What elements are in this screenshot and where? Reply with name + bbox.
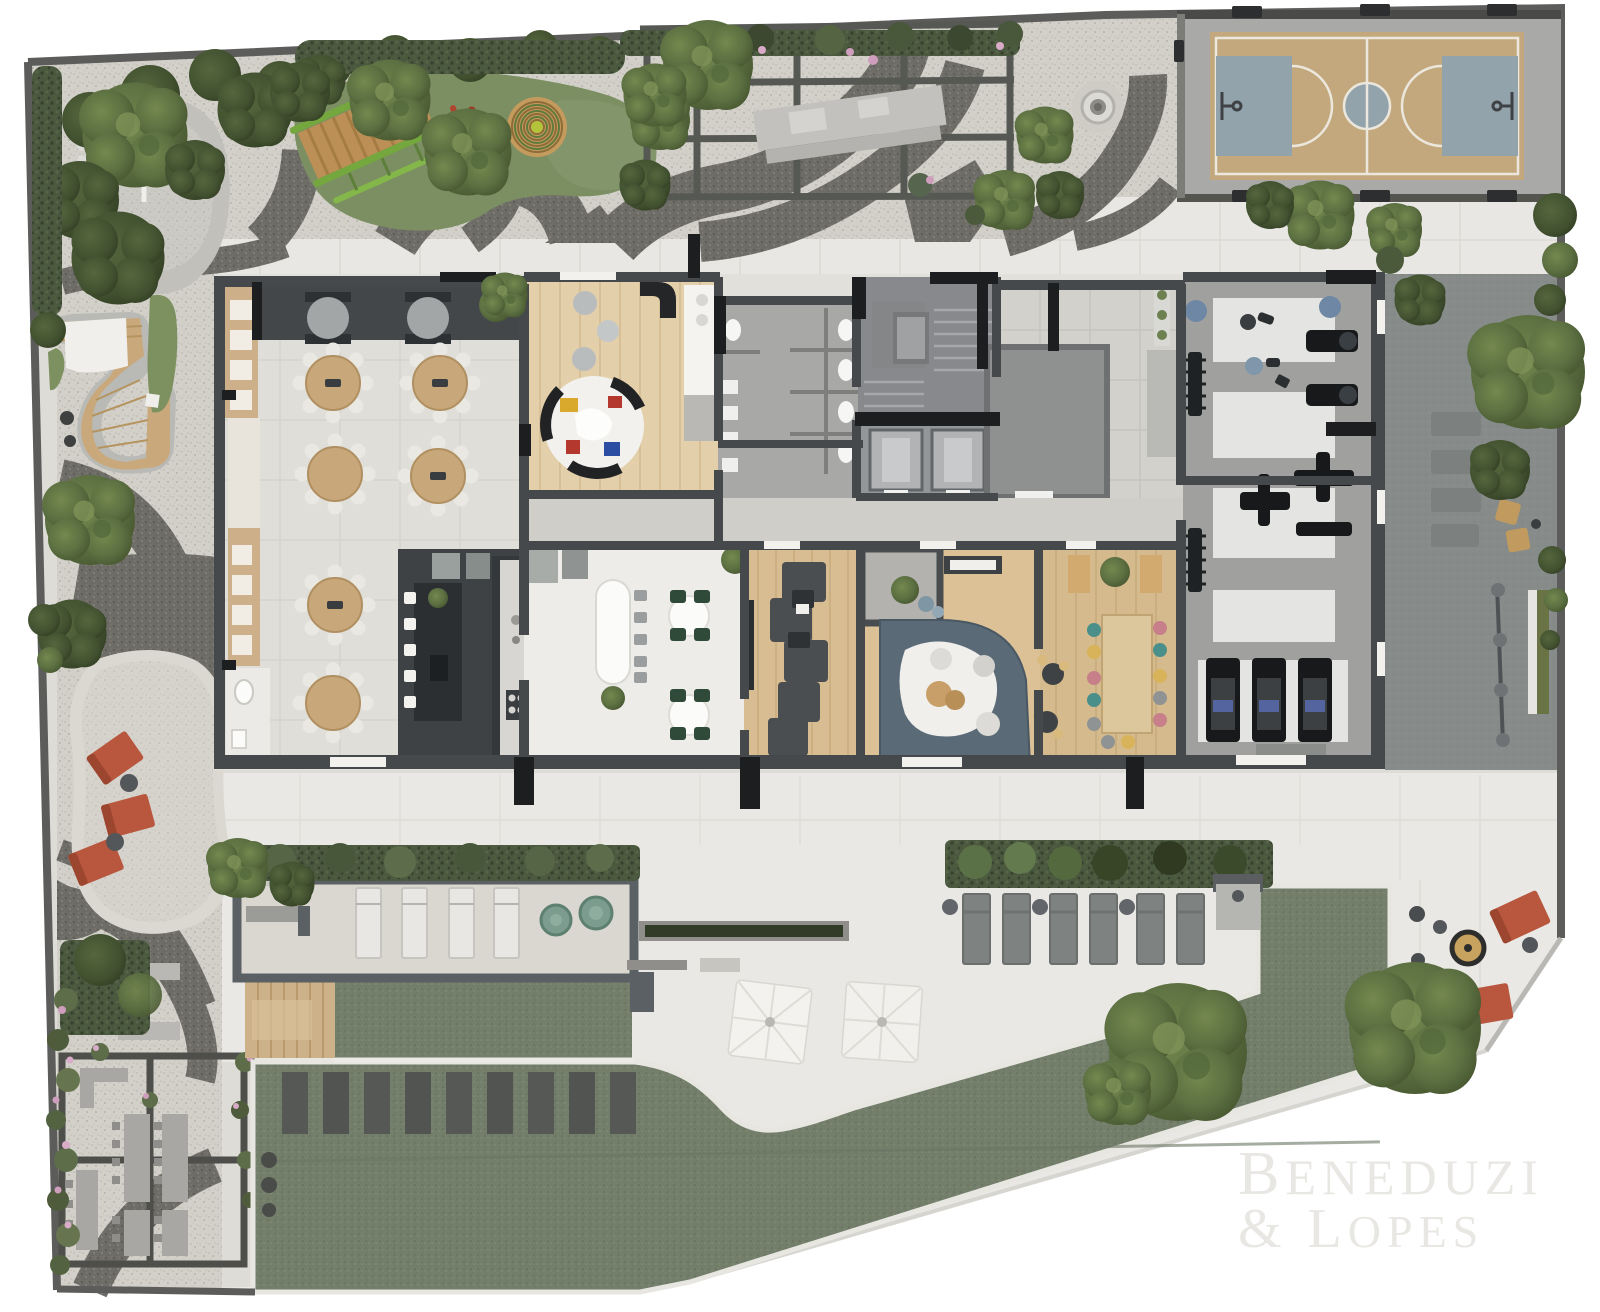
svg-text:& LOPES: & LOPES: [1238, 1198, 1484, 1260]
